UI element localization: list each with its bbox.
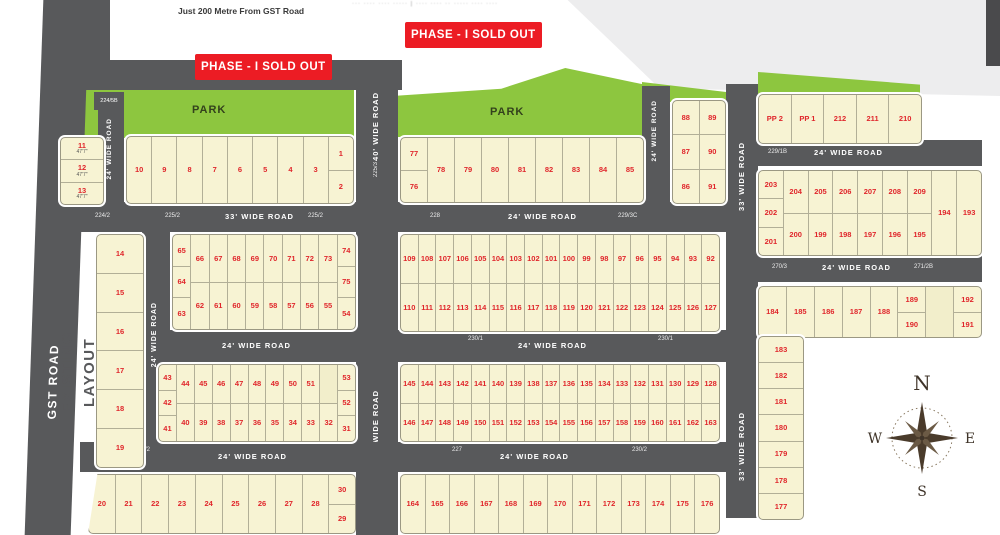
plot-12: 1247'7" [61,160,103,182]
plot-column: 96123 [631,235,649,331]
compass-rose: N E S W [866,372,978,502]
plot-column: 5 [253,137,278,203]
plot-24: 24 [196,475,222,533]
plot-186: 186 [815,287,842,337]
phase-sold-out-banner-left: PHASE - I SOLD OUT [195,54,332,80]
plot-65: 65 [173,235,190,267]
plot-7: 7 [203,137,227,203]
plot-200: 200 [784,214,808,256]
plot-144: 144 [419,365,436,404]
plot-column: 21 [116,475,143,533]
plot-column: 20 [89,475,116,533]
r33h-label-west: 33' WIDE ROAD [225,212,294,221]
plot-column: 132159 [631,365,649,441]
plot-117: 117 [525,284,542,332]
plot-14: 14 [97,235,143,274]
plot-30: 30 [329,475,355,505]
plot-57: 57 [283,283,300,330]
plot-196: 196 [883,214,907,256]
plot-73: 73 [319,235,336,283]
plot-column: 7355 [319,235,337,329]
plot-177: 177 [759,494,803,519]
plot-column: 128163 [702,365,719,441]
plot-32: 32 [320,404,337,442]
plot-dimension: 47'7" [76,150,87,155]
existing-layout-label: EXISTING LAYOUT [54,282,104,462]
plot-184: 184 [759,287,786,337]
plot-20: 20 [89,475,115,533]
plot-39: 39 [195,404,212,442]
plot-column: 103116 [507,235,525,331]
r24mid-survey-2: 230/1 [658,336,673,342]
plot-column: 212 [824,95,857,143]
plot-193: 193 [957,171,981,255]
road-24-center: 24' WIDE ROAD [642,86,670,204]
plot-column: 185 [787,287,815,337]
rr2-label: 24' WIDE ROAD [822,263,891,272]
plot-21: 21 [116,475,142,533]
plot-column: 23 [169,475,196,533]
plot-130: 130 [667,365,684,404]
plot-2: 2 [329,171,353,204]
plot-column: 9 [152,137,177,203]
plot-column: 208196 [883,171,908,255]
compass-star-graphic: N E S W [866,372,978,502]
plot-169: 169 [524,475,548,533]
plot-60: 60 [228,283,245,330]
plot-157: 157 [596,404,613,442]
compass-north-label: N [913,372,931,395]
plot-column: 105114 [472,235,490,331]
plot-207: 207 [858,171,882,214]
plot-114: 114 [472,284,489,332]
r24low-survey-2: 227 [452,447,462,453]
plot-170: 170 [548,475,572,533]
plot-183: 183 [759,337,803,363]
plot-4: 4 [278,137,302,203]
plot-column: 6 [228,137,253,203]
plot-188: 188 [871,287,898,337]
plot-75: 75 [338,267,355,299]
park-center: PARK [398,68,644,137]
r33h-survey-5: 229/3C [618,213,637,219]
park-left-label: PARK [192,104,226,116]
plot-column: 434241 [159,365,177,441]
plot-column: 135156 [578,365,596,441]
r33h-survey-2: 225/2 [165,213,180,219]
plot-column: 22 [142,475,169,533]
plot-column: 85 [617,138,643,202]
plot-column: 183182181180179178177 [759,337,803,519]
site-plan-map: PARK PARK GST ROAD 40' WIDE ROAD 225/3 2… [0,0,1000,535]
plot-62: 62 [191,283,208,330]
plot-97: 97 [614,235,631,284]
plot-158: 158 [614,404,631,442]
plot-135: 135 [578,365,595,404]
plot-column: 79 [455,138,482,202]
plot-64: 64 [173,267,190,299]
plot-column: 5133 [302,365,320,441]
plot-208: 208 [883,171,907,214]
plot-107: 107 [436,235,453,284]
plot-block-54-75: 6564636662676168606959705871577256735574… [172,234,356,330]
plot-202: 202 [759,199,783,227]
phase-sold-out-banner-right: PHASE - I SOLD OUT [405,22,542,48]
plot-70: 70 [264,235,281,283]
plot-column [926,287,954,337]
plot-104: 104 [490,235,507,284]
plot-167: 167 [475,475,499,533]
plot-35: 35 [266,404,283,442]
plot-block-76-85: 77767879808182838485 [400,137,644,203]
plot-47: 47 [231,365,248,404]
plot-90: 90 [700,135,726,169]
plot-column: 7157 [283,235,301,329]
plot-column: 5034 [284,365,302,441]
plot-108: 108 [419,235,436,284]
plot-column: 899091 [700,101,726,203]
road-33-horizontal: 224/2 225/2 33' WIDE ROAD 225/2 228 24' … [80,202,760,232]
plot-203: 203 [759,171,783,199]
plot-column: 7 [203,137,228,203]
rr2-survey-2: 271/2B [914,264,933,270]
plot-column: 167 [475,475,500,533]
plot-column: 4638 [213,365,231,441]
plot-111: 111 [419,284,436,332]
plot-176: 176 [695,475,719,533]
plot-206: 206 [833,171,857,214]
plot-116: 116 [507,284,524,332]
r33v-label-bottom: 33' WIDE ROAD [737,412,746,481]
plot-column: 140151 [490,365,508,441]
plot-139: 139 [507,365,524,404]
plot-54: 54 [338,298,355,329]
plot-column: 78 [428,138,455,202]
road-24-center-label: 24' WIDE ROAD [651,100,658,162]
plot-180: 180 [759,415,803,441]
plot-198: 198 [833,214,857,256]
plot-141: 141 [472,365,489,404]
rr1-survey: 229/1B [768,149,787,155]
plot-column: 130161 [667,365,685,441]
plot-134: 134 [596,365,613,404]
plot-80: 80 [482,138,508,202]
plot-120: 120 [578,284,595,332]
plot-69: 69 [246,235,263,283]
plot-block-184-192: 184185186187188189190192191 [758,286,982,338]
plot-59: 59 [246,283,263,330]
plot-168: 168 [499,475,523,533]
plot-55: 55 [319,283,336,330]
plot-126: 126 [685,284,702,332]
plot-column: 186 [815,287,843,337]
plot-160: 160 [649,404,666,442]
plot-103: 103 [507,235,524,284]
plot-column: 4836 [249,365,267,441]
plot-147: 147 [419,404,436,442]
plot-column: 7256 [301,235,319,329]
park-center-label: PARK [490,106,524,118]
plot-142: 142 [454,365,471,404]
plot-36: 36 [249,404,266,442]
rr1-label: 24' WIDE ROAD [814,148,883,157]
plot-column: 172 [597,475,622,533]
plot-block-31-53: 4342414440453946384737483649355034513332… [158,364,356,442]
plot-28: 28 [303,475,329,533]
plot-128: 128 [702,365,719,404]
plot-86: 86 [673,170,699,203]
plot-71: 71 [283,235,300,283]
rr2-survey-1: 270/3 [772,264,787,270]
plot-column: 7058 [264,235,282,329]
plot-29: 29 [329,505,355,534]
plot-45: 45 [195,365,212,404]
plot-column: 129162 [685,365,703,441]
plot-88: 88 [673,101,699,135]
plot-block-20-30: 2021222324252627283029 [88,474,356,534]
plot-column: 82 [536,138,563,202]
plot-189: 189 [898,287,925,313]
plot-154: 154 [543,404,560,442]
plot-105: 105 [472,235,489,284]
plot-56: 56 [301,283,318,330]
fine-print: ··· ···· ···· ····· | ···· ···· ·· ·····… [352,1,498,7]
plot-column: 97122 [614,235,632,331]
plot-178: 178 [759,468,803,494]
plot-53: 53 [338,365,355,391]
plot-161: 161 [667,404,684,442]
plot-179: 179 [759,442,803,468]
plot-column: 164 [401,475,426,533]
plot-140: 140 [490,365,507,404]
plot-78: 78 [428,138,454,202]
plot-column: 95124 [649,235,667,331]
approach-road-stub [84,0,110,64]
plot-pp-2: PP 2 [759,95,791,143]
plot-column: 134157 [596,365,614,441]
r24mid-label-east: 24' WIDE ROAD [518,341,587,350]
plot-112: 112 [436,284,453,332]
plot-27: 27 [276,475,302,533]
r24low-label-east: 24' WIDE ROAD [500,452,569,461]
plot-92: 92 [702,235,719,284]
plot-column: 141150 [472,365,490,441]
plot-column: 189190 [898,287,926,337]
plot-77: 77 [401,138,427,171]
plot-172: 172 [597,475,621,533]
plot-166: 166 [450,475,474,533]
plot-95: 95 [649,235,666,284]
plot-dimension: 47'7" [76,173,87,178]
plot-22: 22 [142,475,168,533]
plot-212: 212 [824,95,856,143]
plot-13: 1347'7" [61,183,103,204]
plot-101: 101 [543,235,560,284]
plot-column: PP 2 [759,95,792,143]
plot-block-177-183: 183182181180179178177 [758,336,804,520]
plot-column: 99120 [578,235,596,331]
plot-42: 42 [159,391,176,417]
plot-block-86-91: 888786899091 [672,100,726,204]
plot-127: 127 [702,284,719,332]
plot-column: 81 [509,138,536,202]
plot-133: 133 [614,365,631,404]
plot-column: 207197 [858,171,883,255]
plot-column: 206198 [833,171,858,255]
plot-column: 101118 [543,235,561,331]
plot-100: 100 [560,235,577,284]
plot-145: 145 [401,365,418,404]
compass-south-label: S [917,484,927,500]
plot-44: 44 [177,365,194,404]
plot-91: 91 [700,170,726,203]
plot-23: 23 [169,475,195,533]
plot-150: 150 [472,404,489,442]
plot-106: 106 [454,235,471,284]
plot-column: 104115 [490,235,508,331]
plot-63: 63 [173,298,190,329]
top-right-edge-road [986,0,1000,66]
plot-column: 145146 [401,365,419,441]
plot-pp-1: PP 1 [792,95,824,143]
plot-181: 181 [759,389,803,415]
plot-137: 137 [543,365,560,404]
road-24-mid: 24' WIDE ROAD 230/1 24' WIDE ROAD 230/1 [170,330,760,362]
plot-column: 6761 [210,235,228,329]
plot-column: 24 [196,475,223,533]
plot-162: 162 [685,404,702,442]
plot-152: 152 [507,404,524,442]
plot-171: 171 [573,475,597,533]
plot-149: 149 [454,404,471,442]
plot-column: 84 [590,138,617,202]
plot-165: 165 [426,475,450,533]
plot-182: 182 [759,363,803,389]
plot-124: 124 [649,284,666,332]
plot-102: 102 [525,235,542,284]
plot-6: 6 [228,137,252,203]
plot-column: 4935 [266,365,284,441]
plot-column: 4 [278,137,303,203]
plot-146: 146 [401,404,418,442]
plot-76: 76 [401,171,427,203]
plot-72: 72 [301,235,318,283]
plot-column: 188 [871,287,899,337]
plot-52: 52 [338,391,355,417]
plot-10: 10 [127,137,151,203]
plot-118: 118 [543,284,560,332]
plot-column: 169 [524,475,549,533]
plot-column: 3029 [329,475,355,533]
plot-column: 168 [499,475,524,533]
r33h-survey-4: 228 [430,213,440,219]
plot-column: 26 [249,475,276,533]
plot-column: 888786 [673,101,700,203]
plot-68: 68 [228,235,245,283]
plot-41: 41 [159,416,176,441]
r33v-label-top: 33' WIDE ROAD [737,142,746,211]
plot-136: 136 [560,365,577,404]
plot-175: 175 [671,475,695,533]
plot-83: 83 [563,138,589,202]
plot-129: 129 [685,365,702,404]
plot-93: 93 [685,235,702,284]
plot-131: 131 [649,365,666,404]
plot-column: 28 [303,475,330,533]
plot-49: 49 [266,365,283,404]
plot-50: 50 [284,365,301,404]
plot-37: 37 [231,404,248,442]
r24low-label-west: 24' WIDE ROAD [218,452,287,461]
plot-column: 3 [304,137,329,203]
plot-151: 151 [490,404,507,442]
plot-148: 148 [436,404,453,442]
plot-block-128-163: 1451461441471431481421491411501401511391… [400,364,720,442]
road-33-vertical: 33' WIDE ROAD 33' WIDE ROAD [726,84,758,518]
plot-195: 195 [908,214,932,256]
plot-column: 100119 [560,235,578,331]
plot-column: 747554 [338,235,355,329]
plot-48: 48 [249,365,266,404]
plot-96: 96 [631,235,648,284]
plot-column: 656463 [173,235,191,329]
plot-211: 211 [857,95,889,143]
plot-column: 142149 [454,365,472,441]
plot-column: 194 [932,171,957,255]
plot-67: 67 [210,235,227,283]
plot-94: 94 [667,235,684,284]
plot-132: 132 [631,365,648,404]
plot-155: 155 [560,404,577,442]
plot-column: 108111 [419,235,437,331]
plot-156: 156 [578,404,595,442]
plot-8: 8 [177,137,201,203]
plot-110: 110 [401,284,418,332]
plot-98: 98 [596,235,613,284]
plot-column: 10 [127,137,152,203]
plot-197: 197 [858,214,882,256]
plot-column: 203202201 [759,171,784,255]
plot-column: 98121 [596,235,614,331]
plot-109: 109 [401,235,418,284]
road-24-left-label: 24' WIDE ROAD [151,302,158,367]
plot-column: 175 [671,475,696,533]
plot-column: 165 [426,475,451,533]
r33h-survey-1: 224/2 [95,213,110,219]
plot-205: 205 [809,171,833,214]
plot-column: 25 [223,475,250,533]
plot-153: 153 [525,404,542,442]
compass-west-label: W [868,431,883,447]
plot-column: 12 [329,137,353,203]
plot-82: 82 [536,138,562,202]
plot-159: 159 [631,404,648,442]
r24mid-label-west: 24' WIDE ROAD [222,341,291,350]
plot-209: 209 [908,171,932,214]
plot-column: 80 [482,138,509,202]
plot-143: 143 [436,365,453,404]
plot-1: 1 [329,137,353,171]
plot-column: 102117 [525,235,543,331]
plot-123: 123 [631,284,648,332]
plot-74: 74 [338,235,355,267]
plot-31: 31 [338,416,355,441]
plot-column: 139152 [507,365,525,441]
plot-column: 6959 [246,235,264,329]
plot-201: 201 [759,228,783,255]
plot-column: 535231 [338,365,355,441]
plot-174: 174 [646,475,670,533]
